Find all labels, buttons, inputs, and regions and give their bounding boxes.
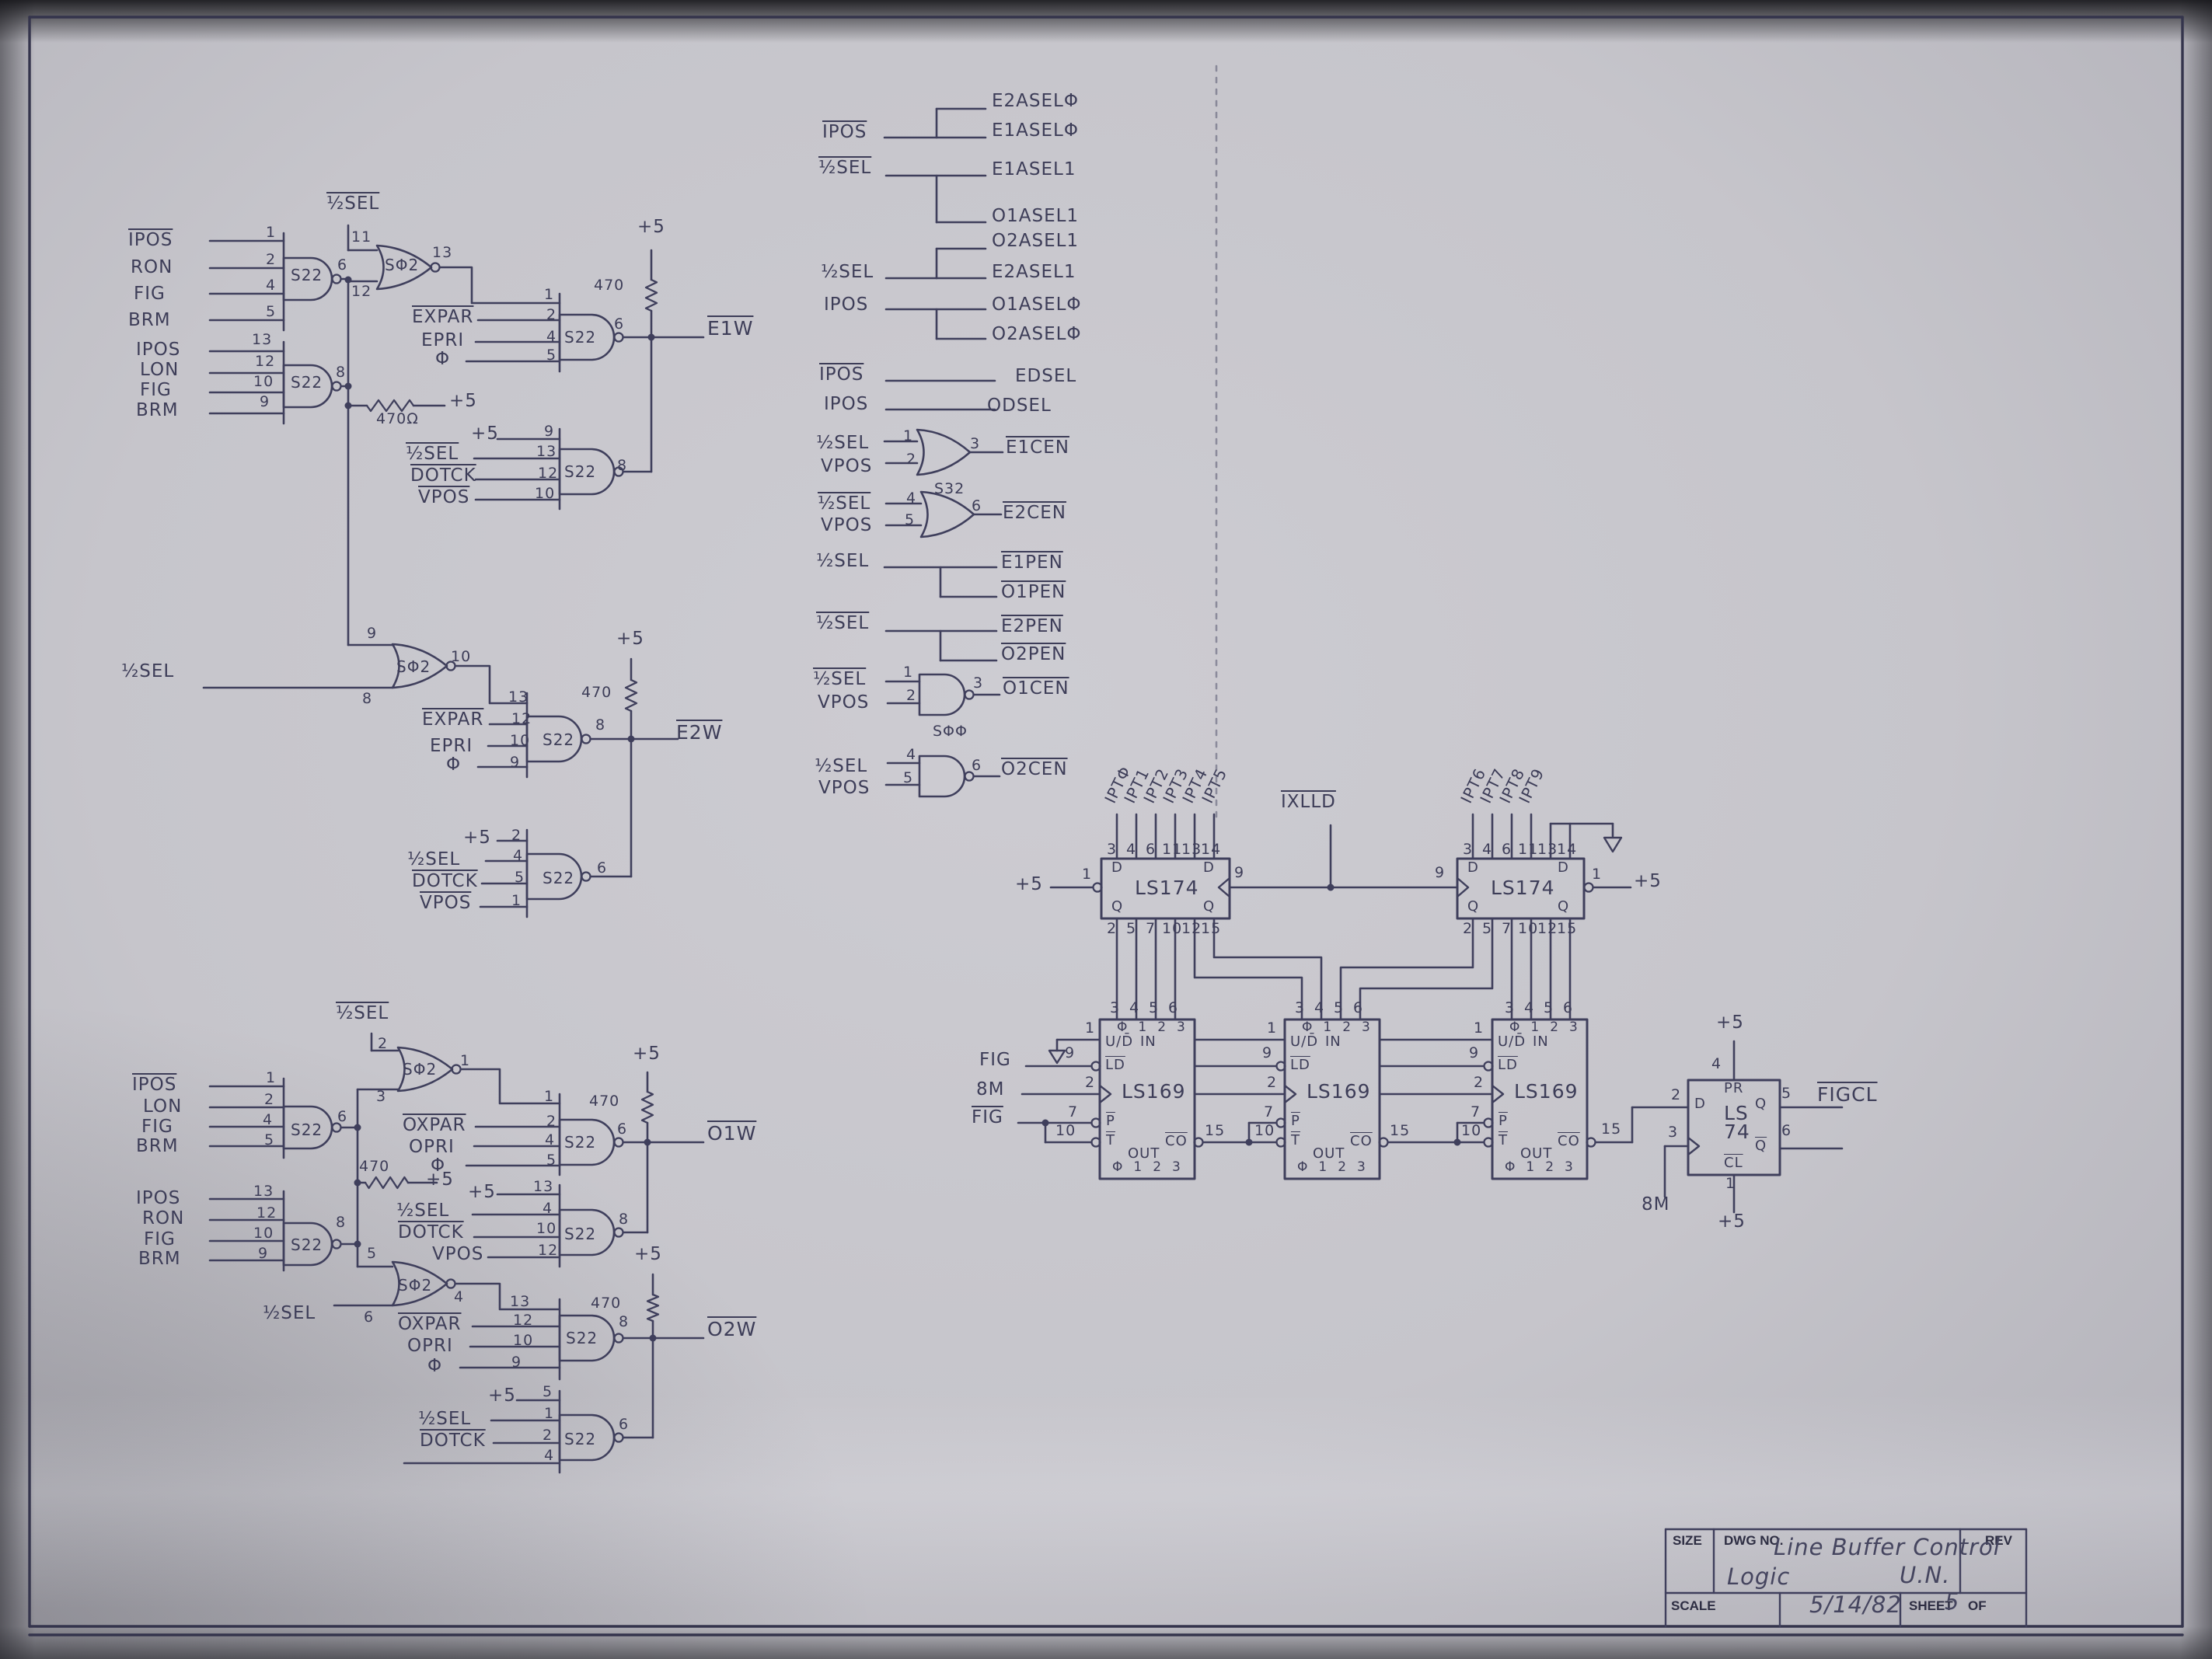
label-9: 9: [1435, 866, 1445, 881]
label-lon: LON: [140, 361, 179, 379]
label-4: 4: [545, 1133, 555, 1148]
label-4: 4: [544, 1448, 554, 1464]
label-ld: LD: [1498, 1058, 1518, 1073]
label-8: 8: [619, 1315, 629, 1330]
label-dotck: DOTCK: [420, 1431, 486, 1450]
label-11: 11: [351, 230, 372, 246]
label-t: T: [1499, 1134, 1508, 1148]
label-edsel: EDSEL: [1015, 367, 1076, 385]
label-vpos: VPOS: [821, 516, 872, 535]
label-e2w: E2W: [676, 723, 722, 743]
label--: Φ: [435, 350, 450, 368]
label-2: 2: [1107, 922, 1117, 937]
label-vpos: VPOS: [821, 457, 872, 476]
label-s22: S22: [291, 1237, 323, 1253]
label-q: Q: [1755, 1139, 1767, 1154]
label--sel: ½SEL: [326, 194, 379, 213]
label-s32: S32: [934, 482, 965, 497]
label-5: 5: [546, 348, 556, 364]
label-fig: FIG: [140, 381, 172, 399]
label--sel: ½SEL: [821, 263, 874, 281]
label--5: +5: [488, 1386, 516, 1405]
label-o2asel-: O2ASELΦ: [992, 325, 1082, 343]
label--sel: ½SEL: [813, 670, 866, 688]
label-2: 2: [1267, 1075, 1277, 1091]
label-5: 5: [543, 1385, 553, 1400]
label-ipos: IPOS: [132, 1075, 176, 1094]
label-4: 4: [1129, 1001, 1139, 1016]
label-8: 8: [362, 692, 372, 707]
label-brm: BRM: [128, 311, 171, 329]
label-470: 470: [594, 278, 624, 294]
label-s22: S22: [564, 1226, 596, 1243]
label-12: 12: [511, 712, 532, 727]
label-dotck: DOTCK: [412, 872, 478, 890]
label-s22: S22: [564, 464, 596, 480]
label-9: 9: [1262, 1046, 1272, 1061]
drawing-title-line1: Line Buffer Control: [1774, 1535, 2001, 1559]
label-5: 5: [1126, 922, 1136, 937]
label-12: 12: [1181, 922, 1202, 937]
label-figcl: FIGCL: [1817, 1085, 1878, 1105]
label-ls169: LS169: [1122, 1082, 1186, 1102]
label-13: 13: [252, 333, 272, 348]
label-o1asel1: O1ASEL1: [992, 207, 1079, 225]
label-4: 4: [1314, 1001, 1324, 1016]
label-3: 3: [973, 676, 983, 692]
label-15: 15: [1390, 1124, 1410, 1139]
label-6: 6: [1168, 1001, 1178, 1016]
label-ipos: IPOS: [824, 395, 868, 413]
label--: Φ: [431, 1156, 445, 1175]
label-ld: LD: [1290, 1058, 1310, 1073]
label-10: 10: [1518, 922, 1538, 937]
label--sel: ½SEL: [818, 159, 871, 177]
label-1: 1: [1267, 1021, 1277, 1037]
label-5: 5: [903, 771, 913, 786]
label-15: 15: [1601, 1122, 1621, 1138]
label--: Φ: [446, 755, 461, 774]
label-1: 1: [1592, 867, 1602, 883]
label-6: 6: [364, 1310, 374, 1326]
title-block-scale-label: SCALE: [1671, 1599, 1716, 1613]
label-ron: RON: [131, 258, 173, 277]
label-d: D: [1694, 1097, 1706, 1112]
label-s-2: SΦ2: [396, 659, 431, 675]
label-e1asel1: E1ASEL1: [992, 160, 1076, 179]
label-5: 5: [905, 513, 915, 528]
label-9: 9: [258, 1246, 268, 1262]
label-6: 6: [972, 499, 982, 514]
label-vpos: VPOS: [432, 1245, 483, 1263]
label-ipos: IPOS: [136, 1189, 180, 1208]
label-oxpar: OXPAR: [398, 1315, 462, 1333]
label-4: 4: [1126, 842, 1136, 858]
label-10: 10: [535, 486, 555, 502]
label-1: 1: [903, 429, 913, 444]
label-10: 10: [253, 1226, 274, 1242]
label--5: +5: [1015, 875, 1043, 894]
label-7: 7: [1502, 922, 1512, 937]
label-brm: BRM: [136, 401, 179, 420]
label--5: +5: [449, 392, 477, 410]
label-o1cen: O1CEN: [1003, 679, 1069, 698]
label-6: 6: [337, 1110, 347, 1125]
label-4: 4: [543, 1201, 553, 1217]
label-10: 10: [1461, 1124, 1481, 1139]
label-5: 5: [546, 1153, 556, 1169]
label-1: 1: [511, 894, 522, 909]
label-e2cen: E2CEN: [1003, 504, 1066, 522]
label-2: 2: [1474, 1075, 1484, 1091]
label-e1pen: E1PEN: [1001, 553, 1063, 572]
label-5: 5: [1544, 1001, 1554, 1016]
label--5: +5: [468, 1183, 496, 1201]
label-8: 8: [336, 1215, 346, 1231]
schematic-drawing: [0, 0, 2212, 1659]
label-13: 13: [536, 444, 556, 460]
label-2: 2: [543, 1428, 553, 1444]
label-1: 1: [903, 665, 913, 681]
label-s22: S22: [291, 1122, 323, 1138]
label-4: 4: [454, 1290, 464, 1305]
label-o2w: O2W: [707, 1319, 756, 1340]
label--sel: ½SEL: [121, 662, 174, 681]
label-4: 4: [546, 329, 556, 345]
label-5: 5: [1781, 1086, 1792, 1102]
label-15: 15: [1201, 922, 1221, 937]
label-fig: FIG: [144, 1230, 176, 1249]
label--5: +5: [463, 828, 491, 847]
label-1: 1: [1085, 1021, 1095, 1037]
label-q: Q: [1467, 900, 1479, 915]
label-dotck: DOTCK: [410, 466, 476, 485]
label--sel: ½SEL: [396, 1201, 449, 1220]
label-brm: BRM: [138, 1249, 181, 1268]
label--5: +5: [637, 218, 665, 236]
label-74: 74: [1724, 1122, 1750, 1142]
label-ipos: IPOS: [819, 365, 864, 384]
label--123: Φ123: [1297, 1161, 1376, 1175]
title-block-of-label: OF: [1968, 1599, 1987, 1613]
label-8: 8: [619, 1212, 629, 1228]
label--: Φ: [427, 1357, 442, 1375]
label-13: 13: [1537, 842, 1558, 858]
label-5: 5: [1334, 1001, 1344, 1016]
label-co: CO: [1558, 1134, 1580, 1149]
label-1: 1: [266, 1071, 276, 1086]
label-10: 10: [253, 375, 274, 390]
label--sel: ½SEL: [407, 850, 460, 869]
label-in: IN: [1140, 1035, 1157, 1050]
label-e2asel-: E2ASELΦ: [992, 92, 1079, 110]
label-u-d-: U/D̄: [1498, 1035, 1526, 1050]
label-fig: FIG: [972, 1108, 1003, 1127]
label-u-d-: U/D̄: [1105, 1035, 1133, 1050]
label-5: 5: [515, 870, 525, 886]
label-8m: 8M: [976, 1080, 1004, 1099]
label-3: 3: [1505, 1001, 1515, 1016]
label-o1asel-: O1ASELΦ: [992, 295, 1082, 314]
label-s22: S22: [543, 732, 574, 748]
label-12: 12: [256, 1206, 277, 1222]
label-4: 4: [266, 278, 276, 294]
label-12: 12: [538, 1243, 558, 1259]
label-o2cen: O2CEN: [1001, 760, 1068, 779]
label-10: 10: [451, 650, 471, 665]
label-e1asel-: E1ASELΦ: [992, 121, 1079, 140]
label-s22: S22: [564, 1431, 596, 1448]
label-2: 2: [906, 688, 916, 704]
label-6: 6: [619, 1417, 629, 1433]
label-7: 7: [1068, 1105, 1078, 1121]
label-3: 3: [1295, 1001, 1305, 1016]
label-ixlld: IXLLD: [1281, 793, 1336, 811]
label-ipos: IPOS: [128, 231, 173, 249]
label-470: 470: [581, 685, 612, 701]
label-3: 3: [376, 1089, 386, 1105]
label-1: 1: [266, 225, 276, 241]
label--5: +5: [1634, 872, 1662, 890]
label-s22: S22: [543, 870, 574, 887]
label--5: +5: [616, 629, 644, 648]
label-u-d-: U/D̄: [1290, 1035, 1318, 1050]
label-5: 5: [266, 305, 276, 320]
label-6: 6: [1502, 842, 1512, 858]
label-6: 6: [614, 317, 624, 333]
label-expar: EXPAR: [412, 308, 473, 326]
label-6: 6: [1781, 1124, 1792, 1139]
label-5: 5: [264, 1133, 274, 1148]
label-5: 5: [367, 1246, 377, 1262]
label-470-: 470Ω: [376, 412, 419, 427]
label-4: 4: [1482, 842, 1492, 858]
label-q: Q: [1558, 900, 1569, 915]
label-odsel: ODSEL: [987, 396, 1052, 415]
drawing-title-line2: Logic: [1727, 1565, 1790, 1588]
label-9: 9: [511, 1355, 522, 1371]
label-8: 8: [336, 365, 346, 381]
label-in: IN: [1325, 1035, 1342, 1050]
drawing-date: 5/14/82: [1809, 1593, 1902, 1616]
label-2: 2: [1085, 1075, 1095, 1091]
label-8: 8: [617, 458, 627, 474]
label-expar: EXPAR: [422, 710, 483, 729]
label--123: Φ123: [1505, 1161, 1584, 1175]
label-9: 9: [367, 626, 377, 642]
label-9: 9: [260, 395, 270, 410]
label-11: 11: [1518, 842, 1538, 858]
label-p: P: [1291, 1114, 1300, 1129]
label-d: D: [1467, 861, 1479, 876]
label-13: 13: [533, 1180, 553, 1195]
label-d: D: [1111, 861, 1123, 876]
label-1: 1: [544, 288, 554, 303]
label-6: 6: [1146, 842, 1156, 858]
label-s22: S22: [564, 1134, 596, 1151]
label-t: T: [1291, 1134, 1300, 1148]
label-8m: 8M: [1642, 1195, 1669, 1214]
label-s-: SΦΦ: [933, 724, 968, 740]
label-e2pen: E2PEN: [1001, 617, 1063, 636]
label-9: 9: [1234, 866, 1244, 881]
label-6: 6: [972, 758, 982, 774]
label-dotck: DOTCK: [398, 1223, 464, 1242]
label-cl: CL: [1724, 1156, 1743, 1171]
label-s22: S22: [566, 1330, 598, 1347]
label-3: 3: [1463, 842, 1473, 858]
label-470: 470: [359, 1159, 389, 1175]
schematic-sheet: IPOSRONFIGBRM1245S226½SEL11SΦ21312IPOSLO…: [0, 0, 2212, 1659]
label-2: 2: [1463, 922, 1473, 937]
label-vpos: VPOS: [818, 779, 870, 797]
label-12: 12: [513, 1313, 533, 1329]
label-13: 13: [432, 246, 452, 261]
label-4: 4: [906, 748, 916, 763]
label-9: 9: [510, 755, 520, 771]
label-13: 13: [510, 1295, 530, 1310]
label-oxpar: OXPAR: [403, 1116, 466, 1134]
label-1: 1: [1082, 867, 1092, 883]
label-5: 5: [1149, 1001, 1159, 1016]
label-vpos: VPOS: [418, 488, 469, 507]
label-d: D: [1558, 861, 1569, 876]
label-fig: FIG: [134, 284, 166, 303]
label-3: 3: [970, 437, 980, 452]
label-2: 2: [1671, 1088, 1681, 1103]
label-6: 6: [617, 1122, 627, 1138]
label-2: 2: [264, 1093, 274, 1108]
label-3: 3: [1110, 1001, 1120, 1016]
label--123: Φ123: [1112, 1161, 1191, 1175]
label-10: 10: [1055, 1124, 1076, 1139]
label-fig: FIG: [141, 1117, 173, 1136]
label-ls169: LS169: [1307, 1082, 1371, 1102]
label-fig: FIG: [979, 1051, 1011, 1069]
label-ipos: IPOS: [824, 295, 868, 314]
label-s-2: SΦ2: [385, 257, 419, 274]
label-14: 14: [1557, 842, 1577, 858]
drawing-sheet-number: 5: [1945, 1590, 1959, 1613]
label-7: 7: [1146, 922, 1156, 937]
label-4: 4: [1524, 1001, 1534, 1016]
label-q: Q: [1111, 900, 1123, 915]
label-2: 2: [511, 828, 522, 844]
label-15: 15: [1205, 1124, 1225, 1139]
label-s-2: SΦ2: [398, 1277, 432, 1294]
label-8: 8: [595, 718, 605, 734]
label-6: 6: [1353, 1001, 1363, 1016]
label--sel: ½SEL: [336, 1004, 389, 1023]
label-epri: EPRI: [430, 737, 473, 755]
label-s22: S22: [291, 375, 323, 391]
label-s22: S22: [291, 267, 323, 284]
label-opri: OPRI: [407, 1337, 453, 1355]
label-10: 10: [513, 1333, 533, 1349]
label-15: 15: [1557, 922, 1577, 937]
label-10: 10: [510, 734, 530, 749]
label-1: 1: [1474, 1021, 1484, 1037]
label-pr: PR: [1724, 1082, 1743, 1096]
label--sel: ½SEL: [816, 614, 869, 633]
label-q: Q: [1203, 900, 1215, 915]
label-ls174: LS174: [1491, 878, 1555, 898]
label-brm: BRM: [136, 1137, 179, 1155]
label-2: 2: [266, 253, 276, 268]
label-7: 7: [1471, 1105, 1481, 1121]
label--5: +5: [633, 1044, 661, 1063]
label--5: +5: [1716, 1013, 1744, 1032]
label-co: CO: [1165, 1134, 1188, 1149]
label-6: 6: [1563, 1001, 1573, 1016]
label-1: 1: [1725, 1176, 1736, 1192]
label--sel: ½SEL: [406, 444, 459, 463]
label-2: 2: [546, 308, 556, 323]
label-13: 13: [253, 1184, 274, 1200]
label-2: 2: [906, 452, 916, 468]
label-1: 1: [460, 1054, 470, 1069]
label-12: 12: [255, 354, 275, 370]
label-lon: LON: [143, 1097, 182, 1116]
label-4: 4: [906, 491, 916, 507]
label--5: +5: [471, 424, 499, 443]
label-co: CO: [1350, 1134, 1373, 1149]
label-14: 14: [1201, 842, 1221, 858]
label-ls169: LS169: [1514, 1082, 1579, 1102]
label-epri: EPRI: [421, 331, 464, 350]
label-5: 5: [1482, 922, 1492, 937]
label-ld: LD: [1105, 1058, 1125, 1073]
label--sel: ½SEL: [816, 434, 869, 452]
label-ipos: IPOS: [136, 340, 180, 359]
label-7: 7: [1264, 1105, 1274, 1121]
label-ls174: LS174: [1135, 878, 1199, 898]
label-o1w: O1W: [707, 1124, 756, 1144]
label--5: +5: [634, 1245, 662, 1263]
label-ipos: IPOS: [822, 123, 867, 141]
label-vpos: VPOS: [818, 693, 869, 712]
label-o1pen: O1PEN: [1001, 583, 1066, 601]
label-4: 4: [1711, 1057, 1722, 1072]
label-p: P: [1499, 1114, 1508, 1129]
label-1: 1: [544, 1406, 554, 1422]
label--5: +5: [1718, 1212, 1746, 1231]
label-vpos: VPOS: [420, 894, 471, 912]
label-ron: RON: [142, 1209, 184, 1228]
label-10: 10: [1162, 922, 1182, 937]
label-10: 10: [1254, 1124, 1275, 1139]
label-6: 6: [597, 861, 607, 877]
drawing-initials: U.N.: [1900, 1563, 1950, 1587]
label-p: P: [1106, 1114, 1115, 1129]
label-12: 12: [1537, 922, 1558, 937]
label-d: D: [1203, 861, 1215, 876]
label-s-2: SΦ2: [403, 1061, 437, 1078]
label--sel: ½SEL: [418, 1410, 471, 1428]
label-2: 2: [546, 1114, 556, 1130]
label-470: 470: [589, 1094, 619, 1110]
label-11: 11: [1162, 842, 1182, 858]
label-4: 4: [513, 849, 523, 864]
title-block-size-label: SIZE: [1673, 1534, 1702, 1548]
label--sel: ½SEL: [815, 757, 867, 775]
label--sel: ½SEL: [263, 1304, 316, 1323]
label-6: 6: [337, 258, 347, 274]
label-e1w: E1W: [707, 319, 753, 339]
label-e1cen: E1CEN: [1006, 438, 1069, 457]
label-9: 9: [1469, 1046, 1479, 1061]
label--sel: ½SEL: [818, 494, 870, 513]
